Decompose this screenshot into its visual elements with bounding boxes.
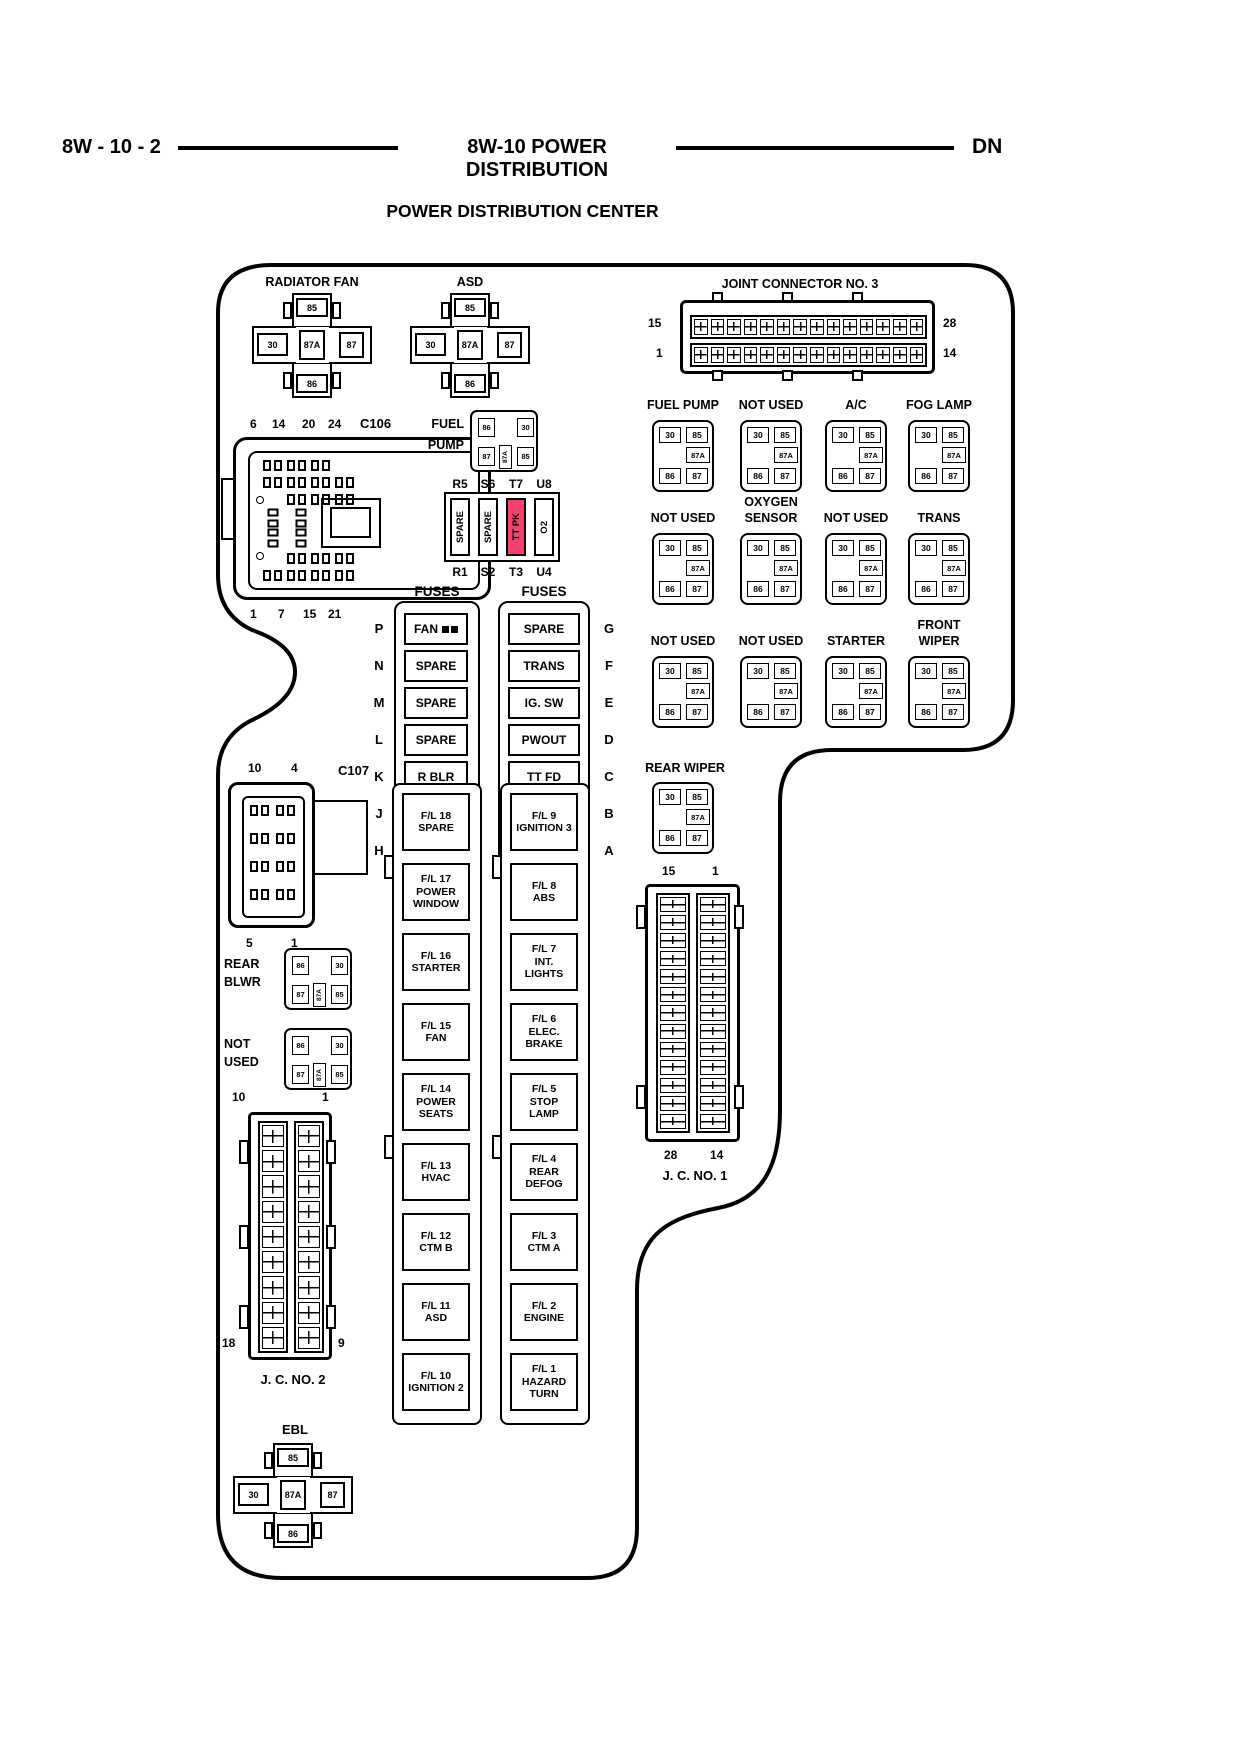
fuse-pos-p: P (368, 621, 390, 636)
connector-tab (326, 1305, 336, 1329)
fl-1-hazard-turn: F/L 1HAZARD TURN (510, 1353, 578, 1411)
c106-pin-glyph (311, 570, 330, 582)
strip-pos: R5 (448, 477, 472, 491)
c106-pin: 20 (302, 417, 315, 431)
pin-85: 85 (296, 298, 328, 317)
connector-tab (239, 1225, 249, 1249)
jc1-connector (645, 884, 740, 1142)
fuel-pump-label-line2: PUMP (408, 438, 464, 452)
pin-30: 30 (832, 663, 854, 679)
c106-pin: 15 (303, 607, 316, 621)
fuse-l-spare: SPARE (404, 724, 468, 756)
c107-pin: 5 (246, 936, 253, 950)
pin-85: 85 (942, 427, 964, 443)
relay-label-rear-wiper: REAR WIPER (640, 761, 730, 777)
pin-87a: 87A (686, 683, 710, 699)
connector-tab (734, 1085, 744, 1109)
relay-tab (332, 372, 341, 389)
fl-4-rear-defog: F/L 4REAR DEFOG (510, 1143, 578, 1201)
pin-86: 86 (915, 468, 937, 484)
fuse-t3-ttpk-highlighted: TT PK (506, 498, 526, 556)
relay-socket-not-used: 308587A8687 (652, 656, 714, 728)
relay-label-not-used: NOT USED (728, 398, 814, 414)
c106-pin-glyph (267, 529, 279, 548)
pin-87: 87 (942, 581, 964, 597)
c107-pin-glyph (276, 833, 295, 845)
c106-pin: 14 (272, 417, 285, 431)
pin-30: 30 (331, 1036, 348, 1055)
connector-tab (326, 1225, 336, 1249)
pin-87: 87 (774, 581, 796, 597)
pin-87: 87 (339, 332, 364, 358)
pin-85: 85 (942, 663, 964, 679)
relay-tab (313, 1452, 322, 1469)
manual-page: 8W - 10 - 2 8W-10 POWER DISTRIBUTION DN … (0, 0, 1240, 1754)
rear-blwr-label-line2: BLWR (224, 975, 261, 989)
relay-tab (264, 1522, 273, 1539)
pin-85: 85 (774, 540, 796, 556)
pin-30: 30 (331, 956, 348, 975)
pin-86: 86 (747, 468, 769, 484)
c106-pin-glyph (311, 460, 330, 472)
pin-30: 30 (238, 1483, 269, 1506)
pin-87: 87 (942, 704, 964, 720)
fuse-pos-a: A (598, 843, 620, 858)
fuses-header-left: FUSES (394, 584, 480, 599)
c106-pin: 6 (250, 417, 257, 431)
c106-pin-glyph (287, 494, 306, 506)
asd-relay: 85 30 87A 87 86 (410, 293, 530, 398)
pdc-outline (0, 0, 1240, 1754)
c107-pin-glyph (250, 889, 269, 901)
relay-socket-fog-lamp: 308587A8687 (908, 420, 970, 492)
relay-socket-rear-wiper: 308587A8687 (652, 782, 714, 854)
pin-87a: 87A (280, 1480, 306, 1510)
pin-86: 86 (292, 956, 309, 975)
fuse-pos-j: J (368, 806, 390, 821)
pin-86: 86 (915, 581, 937, 597)
pin-86: 86 (296, 374, 328, 393)
relay-tab (283, 302, 292, 319)
pin-85: 85 (942, 540, 964, 556)
pin-87: 87 (686, 468, 708, 484)
pin-85: 85 (686, 663, 708, 679)
connector-tab (636, 1085, 646, 1109)
c106-pin-glyph (311, 477, 330, 489)
relay-tab (441, 372, 450, 389)
connector-tab (492, 855, 502, 879)
connector-tab (636, 905, 646, 929)
pin-86: 86 (832, 468, 854, 484)
pin-30: 30 (915, 540, 937, 556)
pin-87: 87 (774, 704, 796, 720)
c107-pin-glyph (250, 861, 269, 873)
jc1-pin-28: 28 (664, 1148, 677, 1162)
pin-30: 30 (915, 663, 937, 679)
relay-tab (313, 1522, 322, 1539)
pin-30: 30 (659, 427, 681, 443)
c107-pin-glyph (250, 805, 269, 817)
pin-87a: 87A (313, 1063, 326, 1087)
rear-blwr-label-line1: REAR (224, 957, 259, 971)
relay-label-front-wiper: FRONT WIPER (896, 618, 982, 649)
pin-87a: 87A (859, 560, 883, 576)
asd-label: ASD (410, 275, 530, 291)
fl-7-int-lights: F/L 7INT. LIGHTS (510, 933, 578, 991)
pin-30: 30 (659, 789, 681, 805)
c107-side-tab (313, 800, 368, 875)
fuse-pos-f: F (598, 658, 620, 673)
c106-pin-glyph (287, 553, 306, 565)
fl-11-asd: F/L 11ASD (402, 1283, 470, 1341)
relay-tab (332, 302, 341, 319)
fl-17-power-window: F/L 17POWER WINDOW (402, 863, 470, 921)
pin-30: 30 (415, 333, 446, 356)
not-used-label-line2: USED (224, 1055, 259, 1069)
fuse-p-fan: FAN (404, 613, 468, 645)
relay-label-starter: STARTER (813, 634, 899, 650)
relay-socket-front-wiper: 308587A8687 (908, 656, 970, 728)
rear-blwr-relay: 86 30 87 87A 85 (284, 948, 352, 1010)
ebl-label: EBL (235, 1422, 355, 1438)
pin-87a: 87A (686, 560, 710, 576)
fl-14-power-seats: F/L 14POWER SEATS (402, 1073, 470, 1131)
pin-87a: 87A (859, 683, 883, 699)
relay-label-not-used: NOT USED (813, 511, 899, 527)
pin-30: 30 (832, 540, 854, 556)
jc2-pin-9: 9 (338, 1336, 345, 1350)
jc1-col-left (656, 893, 690, 1133)
c107-pin: 4 (291, 761, 298, 775)
fuse-pos-k: K (368, 769, 390, 784)
relay-label-oxygen-sensor: OXYGEN SENSOR (728, 495, 814, 526)
pin-87: 87 (942, 468, 964, 484)
fan-indicator-square (451, 626, 458, 633)
relay-socket-oxygen-sensor: 308587A8687 (740, 533, 802, 605)
fl-5-stop-lamp: F/L 5STOP LAMP (510, 1073, 578, 1131)
pin-30: 30 (517, 418, 534, 437)
pin-87a: 87A (499, 445, 512, 469)
pin-85: 85 (859, 663, 881, 679)
c106-socket (321, 498, 381, 548)
connector-tab (239, 1305, 249, 1329)
pin-87: 87 (859, 704, 881, 720)
relay-socket-not-used: 308587A8687 (740, 420, 802, 492)
c106-socket-inner (330, 507, 371, 538)
fuse-pos-n: N (368, 658, 390, 673)
connector-tab (712, 370, 723, 381)
jc1-label: J. C. NO. 1 (640, 1168, 750, 1183)
relay-tab (441, 302, 450, 319)
pin-87: 87 (686, 830, 708, 846)
fl-16-starter: F/L 16STARTER (402, 933, 470, 991)
jc3-pin-15: 15 (648, 316, 661, 330)
fl-8-abs: F/L 8ABS (510, 863, 578, 921)
pin-85: 85 (331, 1065, 348, 1084)
pin-85: 85 (686, 789, 708, 805)
pin-87a: 87A (942, 683, 966, 699)
fl-18-spare: F/L 18SPARE (402, 793, 470, 851)
c107-label: C107 (338, 763, 369, 778)
pin-87a: 87A (686, 809, 710, 825)
jc3-pin-28: 28 (943, 316, 956, 330)
jc3-row-top (690, 315, 927, 339)
pin-85: 85 (859, 427, 881, 443)
c106-pin: 1 (250, 607, 257, 621)
c107-pin: 10 (248, 761, 261, 775)
fl-9-ignition-3: F/L 9IGNITION 3 (510, 793, 578, 851)
fuse-r1-spare: SPARE (450, 498, 470, 556)
not-used-label-line1: NOT (224, 1037, 250, 1051)
connector-tab (734, 905, 744, 929)
pin-87: 87 (686, 581, 708, 597)
pin-86: 86 (832, 704, 854, 720)
relay-label-not-used: NOT USED (640, 511, 726, 527)
c107-connector (228, 782, 315, 928)
pin-86: 86 (659, 830, 681, 846)
fuse-pos-m: M (368, 695, 390, 710)
connector-tab (852, 370, 863, 381)
pin-30: 30 (747, 663, 769, 679)
pin-86: 86 (659, 704, 681, 720)
relay-label-trans: TRANS (896, 511, 982, 527)
pin-87a: 87A (457, 330, 483, 360)
jc1-pin-15: 15 (662, 864, 675, 878)
fuel-pump-relay: 86 30 87 87A 85 (470, 410, 538, 472)
fuses-header-right: FUSES (498, 584, 590, 599)
relay-label-fuel-pump: FUEL PUMP (640, 398, 726, 414)
ebl-relay: 85 30 87A 87 86 (233, 1443, 353, 1548)
fuse-n-spare: SPARE (404, 650, 468, 682)
fuse-f-trans: TRANS (508, 650, 580, 682)
c106-pin-glyph (287, 460, 306, 472)
c106-pin-glyph (311, 553, 330, 565)
relay-label-ac: A/C (813, 398, 899, 414)
pin-85: 85 (774, 663, 796, 679)
fuse-pos-c: C (598, 769, 620, 784)
fuse-pos-b: B (598, 806, 620, 821)
fuse-pos-d: D (598, 732, 620, 747)
connector-tab (326, 1140, 336, 1164)
jc2-pin-18: 18 (222, 1336, 235, 1350)
pin-86: 86 (832, 581, 854, 597)
relay-socket-fuel-pump: 308587A8687 (652, 420, 714, 492)
relay-socket-ac: 308587A8687 (825, 420, 887, 492)
c106-pin-glyph (287, 477, 306, 489)
c107-pin-glyph (276, 889, 295, 901)
pin-86: 86 (747, 704, 769, 720)
pin-87: 87 (478, 447, 495, 466)
jc1-pin-14: 14 (710, 1148, 723, 1162)
pin-87: 87 (292, 985, 309, 1004)
fl-10-ignition-2: F/L 10IGNITION 2 (402, 1353, 470, 1411)
fuse-s2-spare: SPARE (478, 498, 498, 556)
c106-pin: 24 (328, 417, 341, 431)
pin-86: 86 (747, 581, 769, 597)
jc3-pin-14: 14 (943, 346, 956, 360)
relay-socket-not-used: 308587A8687 (652, 533, 714, 605)
relay-tab (490, 302, 499, 319)
relay-socket-trans: 308587A8687 (908, 533, 970, 605)
relay-tab (264, 1452, 273, 1469)
pin-87a: 87A (942, 560, 966, 576)
strip-pos: R1 (448, 565, 472, 579)
fuel-pump-label-line1: FUEL (408, 417, 464, 431)
fuse-e-igsw: IG. SW (508, 687, 580, 719)
pin-30: 30 (659, 540, 681, 556)
c106-dot (256, 552, 264, 560)
pin-85: 85 (454, 298, 486, 317)
c106-pin-glyph (267, 509, 279, 528)
strip-pos: T7 (504, 477, 528, 491)
connector-tab (384, 1135, 394, 1159)
fuse-pos-e: E (598, 695, 620, 710)
c106-label: C106 (360, 416, 391, 431)
pin-87a: 87A (313, 983, 326, 1007)
fuse-u4-o2: O2 (534, 498, 554, 556)
pin-87a: 87A (942, 447, 966, 463)
relay-tab (283, 372, 292, 389)
fuse-pos-l: L (368, 732, 390, 747)
pin-85: 85 (859, 540, 881, 556)
pin-86: 86 (454, 374, 486, 393)
c106-pin-glyph (295, 529, 307, 548)
pin-85: 85 (331, 985, 348, 1004)
pin-86: 86 (915, 704, 937, 720)
pin-85: 85 (774, 427, 796, 443)
c106-pin-glyph (335, 477, 354, 489)
relay-label-not-used: NOT USED (728, 634, 814, 650)
jc2-label: J. C. NO. 2 (238, 1372, 348, 1387)
fl-13-hvac: F/L 13HVAC (402, 1143, 470, 1201)
relay-socket-starter: 308587A8687 (825, 656, 887, 728)
relay-label-fog-lamp: FOG LAMP (896, 398, 982, 414)
radiator-fan-relay: 85 30 87A 87 86 (252, 293, 372, 398)
pin-85: 85 (686, 427, 708, 443)
fuse-m-spare: SPARE (404, 687, 468, 719)
connector-tab (384, 855, 394, 879)
pin-87: 87 (686, 704, 708, 720)
c107-pin-glyph (276, 805, 295, 817)
not-used-relay: 86 30 87 87A 85 (284, 1028, 352, 1090)
jc1-col-right (696, 893, 730, 1133)
connector-tab (782, 370, 793, 381)
radiator-fan-label: RADIATOR FAN (232, 275, 392, 291)
relay-socket-not-used: 308587A8687 (740, 656, 802, 728)
c106-pin-glyph (263, 477, 282, 489)
pin-87: 87 (497, 332, 522, 358)
c106-pin-glyph (335, 553, 354, 565)
fl-15-fan: F/L 15FAN (402, 1003, 470, 1061)
pin-87a: 87A (774, 560, 798, 576)
pin-87a: 87A (299, 330, 325, 360)
c106-pin-glyph (263, 570, 282, 582)
pin-30: 30 (832, 427, 854, 443)
jc2-pin-10: 10 (232, 1090, 245, 1104)
pin-87a: 87A (686, 447, 710, 463)
jc3-label: JOINT CONNECTOR NO. 3 (690, 277, 910, 293)
strip-pos: S2 (476, 565, 500, 579)
pin-30: 30 (747, 427, 769, 443)
pin-86: 86 (659, 581, 681, 597)
c107-pin-glyph (250, 833, 269, 845)
pin-30: 30 (257, 333, 288, 356)
pin-30: 30 (747, 540, 769, 556)
strip-pos: U8 (532, 477, 556, 491)
pin-85: 85 (686, 540, 708, 556)
fl-3-ctm-a: F/L 3CTM A (510, 1213, 578, 1271)
relay-tab (490, 372, 499, 389)
c106-pin-glyph (295, 509, 307, 528)
c106-pin-glyph (335, 570, 354, 582)
fl-6-elec-brake: F/L 6ELEC. BRAKE (510, 1003, 578, 1061)
fan-indicator-square (442, 626, 449, 633)
pin-85: 85 (277, 1448, 309, 1467)
jc3-pin-1: 1 (656, 346, 663, 360)
pin-87a: 87A (774, 447, 798, 463)
relay-socket-not-used: 308587A8687 (825, 533, 887, 605)
pin-86: 86 (478, 418, 495, 437)
pin-87a: 87A (859, 447, 883, 463)
strip-pos: U4 (532, 565, 556, 579)
c106-pin-glyph (287, 570, 306, 582)
c106-pin: 21 (328, 607, 341, 621)
pin-86: 86 (659, 468, 681, 484)
jc3-connector (680, 300, 935, 374)
connector-tab (239, 1140, 249, 1164)
fl-2-engine: F/L 2ENGINE (510, 1283, 578, 1341)
pin-86: 86 (292, 1036, 309, 1055)
fuse-pos-g: G (598, 621, 620, 636)
c106-side-tab (221, 478, 235, 540)
c106-dot (256, 496, 264, 504)
jc1-pin-1: 1 (712, 864, 719, 878)
c106-pin: 7 (278, 607, 285, 621)
pin-87: 87 (292, 1065, 309, 1084)
pin-30: 30 (915, 427, 937, 443)
jc2-pin-1: 1 (322, 1090, 329, 1104)
pin-87a: 87A (774, 683, 798, 699)
pin-87: 87 (774, 468, 796, 484)
pin-86: 86 (277, 1524, 309, 1543)
pin-87: 87 (859, 581, 881, 597)
pin-30: 30 (659, 663, 681, 679)
fuse-d-pwout: PWOUT (508, 724, 580, 756)
strip-pos: T3 (504, 565, 528, 579)
jc2-col-left (258, 1121, 288, 1353)
relay-label-not-used: NOT USED (640, 634, 726, 650)
jc2-connector (248, 1112, 332, 1360)
jc3-row-bottom (690, 343, 927, 367)
jc2-col-right (294, 1121, 324, 1353)
c107-pin-glyph (276, 861, 295, 873)
connector-tab (492, 1135, 502, 1159)
strip-pos: S6 (476, 477, 500, 491)
fuse-g-spare: SPARE (508, 613, 580, 645)
pin-87: 87 (320, 1482, 345, 1508)
pin-85: 85 (517, 447, 534, 466)
fl-12-ctm-b: F/L 12CTM B (402, 1213, 470, 1271)
pin-87: 87 (859, 468, 881, 484)
c106-pin-glyph (263, 460, 282, 472)
